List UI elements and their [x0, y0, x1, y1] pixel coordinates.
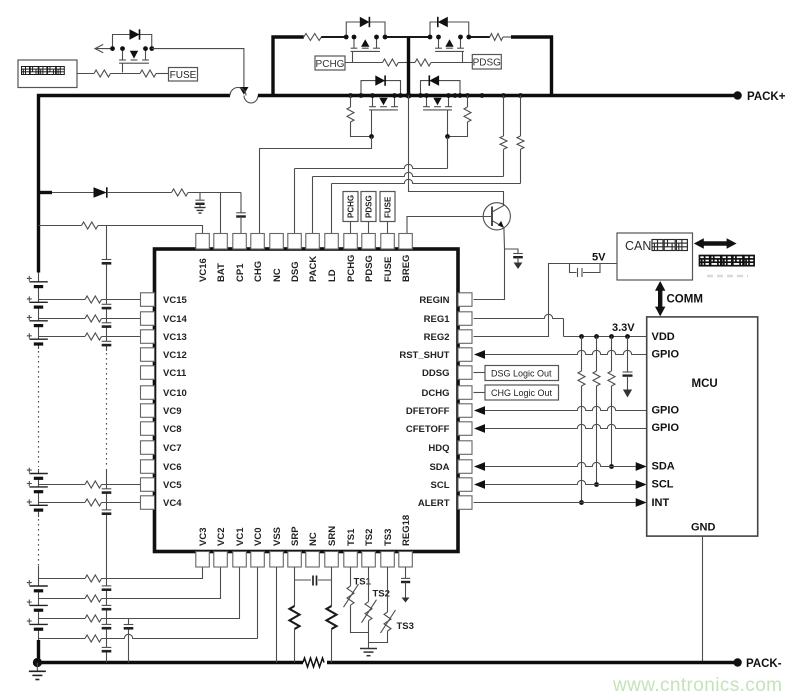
svg-text:3.3V: 3.3V [612, 322, 635, 334]
svg-text:VC16: VC16 [198, 258, 209, 282]
svg-text:SCL: SCL [652, 479, 674, 491]
svg-text:SDA: SDA [429, 462, 449, 473]
svg-text:VC8: VC8 [163, 424, 181, 435]
svg-text:SDA: SDA [652, 461, 675, 473]
svg-text:REG18: REG18 [401, 515, 412, 546]
svg-text:VC4: VC4 [163, 498, 182, 509]
svg-text:VSS: VSS [272, 527, 283, 546]
svg-text:CHG Logic Out: CHG Logic Out [491, 388, 553, 398]
svg-text:CFETOFF: CFETOFF [406, 424, 450, 435]
svg-text:GPIO: GPIO [652, 349, 680, 361]
svg-text:FUSE: FUSE [384, 196, 393, 218]
svg-text:HDQ: HDQ [428, 443, 449, 454]
svg-text:TS3: TS3 [383, 529, 394, 546]
svg-text:CAN: CAN [625, 239, 651, 253]
svg-text:REG1: REG1 [424, 314, 451, 325]
svg-text:PACK-: PACK- [746, 658, 782, 670]
svg-text:www.cntronics.com: www.cntronics.com [612, 675, 782, 696]
svg-text:TS3: TS3 [397, 621, 414, 632]
svg-text:VC3: VC3 [198, 528, 209, 546]
svg-text:VC14: VC14 [163, 314, 187, 325]
svg-text:PCHG: PCHG [347, 195, 356, 218]
svg-text:CHG: CHG [253, 261, 264, 282]
svg-text:VC13: VC13 [163, 332, 187, 343]
svg-text:INT: INT [652, 497, 670, 509]
svg-text:DDSG: DDSG [422, 368, 449, 379]
svg-text:5V: 5V [592, 252, 606, 264]
svg-text:DSG Logic Out: DSG Logic Out [491, 368, 552, 378]
svg-text:DSG: DSG [290, 261, 301, 282]
svg-text:MCU: MCU [692, 378, 718, 390]
svg-text:SRN: SRN [327, 526, 338, 546]
svg-text:REG2: REG2 [424, 332, 450, 343]
svg-text:NC: NC [272, 268, 283, 282]
svg-text:GPIO: GPIO [652, 422, 680, 434]
svg-text:VC9: VC9 [163, 406, 181, 417]
svg-text:VC6: VC6 [163, 462, 181, 473]
svg-text:DFETOFF: DFETOFF [406, 406, 450, 417]
svg-text:VC12: VC12 [163, 350, 187, 361]
svg-text:PACK: PACK [308, 256, 319, 282]
svg-text:CP1: CP1 [235, 263, 246, 282]
svg-text:FUSE: FUSE [170, 70, 197, 81]
svg-text:FUSE: FUSE [383, 257, 394, 282]
svg-text:PDSG: PDSG [473, 58, 502, 69]
svg-text:SRP: SRP [290, 526, 301, 546]
svg-text:LD: LD [327, 269, 338, 282]
svg-text:VC1: VC1 [235, 527, 246, 546]
svg-text:VC5: VC5 [163, 480, 182, 491]
svg-text:NC: NC [308, 532, 319, 546]
svg-text:VC2: VC2 [216, 528, 227, 546]
svg-text:VDD: VDD [652, 331, 675, 343]
svg-text:VC10: VC10 [163, 388, 187, 399]
svg-text:PDSG: PDSG [365, 195, 374, 218]
svg-text:VC0: VC0 [253, 528, 264, 546]
svg-text:SCL: SCL [431, 480, 450, 491]
svg-text:DCHG: DCHG [422, 388, 450, 399]
svg-text:RST_SHUT: RST_SHUT [399, 350, 449, 361]
svg-text:TS2: TS2 [364, 529, 375, 546]
svg-text:GND: GND [691, 522, 716, 534]
svg-text:BAT: BAT [216, 263, 227, 282]
svg-text:REGIN: REGIN [419, 295, 449, 306]
svg-text:PCHG: PCHG [316, 59, 345, 70]
svg-text:TS1: TS1 [346, 528, 357, 546]
svg-text:VC11: VC11 [163, 368, 187, 379]
svg-text:VC15: VC15 [163, 295, 187, 306]
svg-text:PCHG: PCHG [346, 255, 357, 282]
svg-text:VC7: VC7 [163, 443, 181, 454]
svg-text:COMM: COMM [667, 294, 703, 306]
svg-text:PDSG: PDSG [364, 255, 375, 282]
svg-text:ALERT: ALERT [418, 498, 450, 509]
svg-text:PACK+: PACK+ [747, 91, 786, 103]
svg-text:GPIO: GPIO [652, 404, 680, 416]
svg-text:BREG: BREG [401, 255, 412, 282]
